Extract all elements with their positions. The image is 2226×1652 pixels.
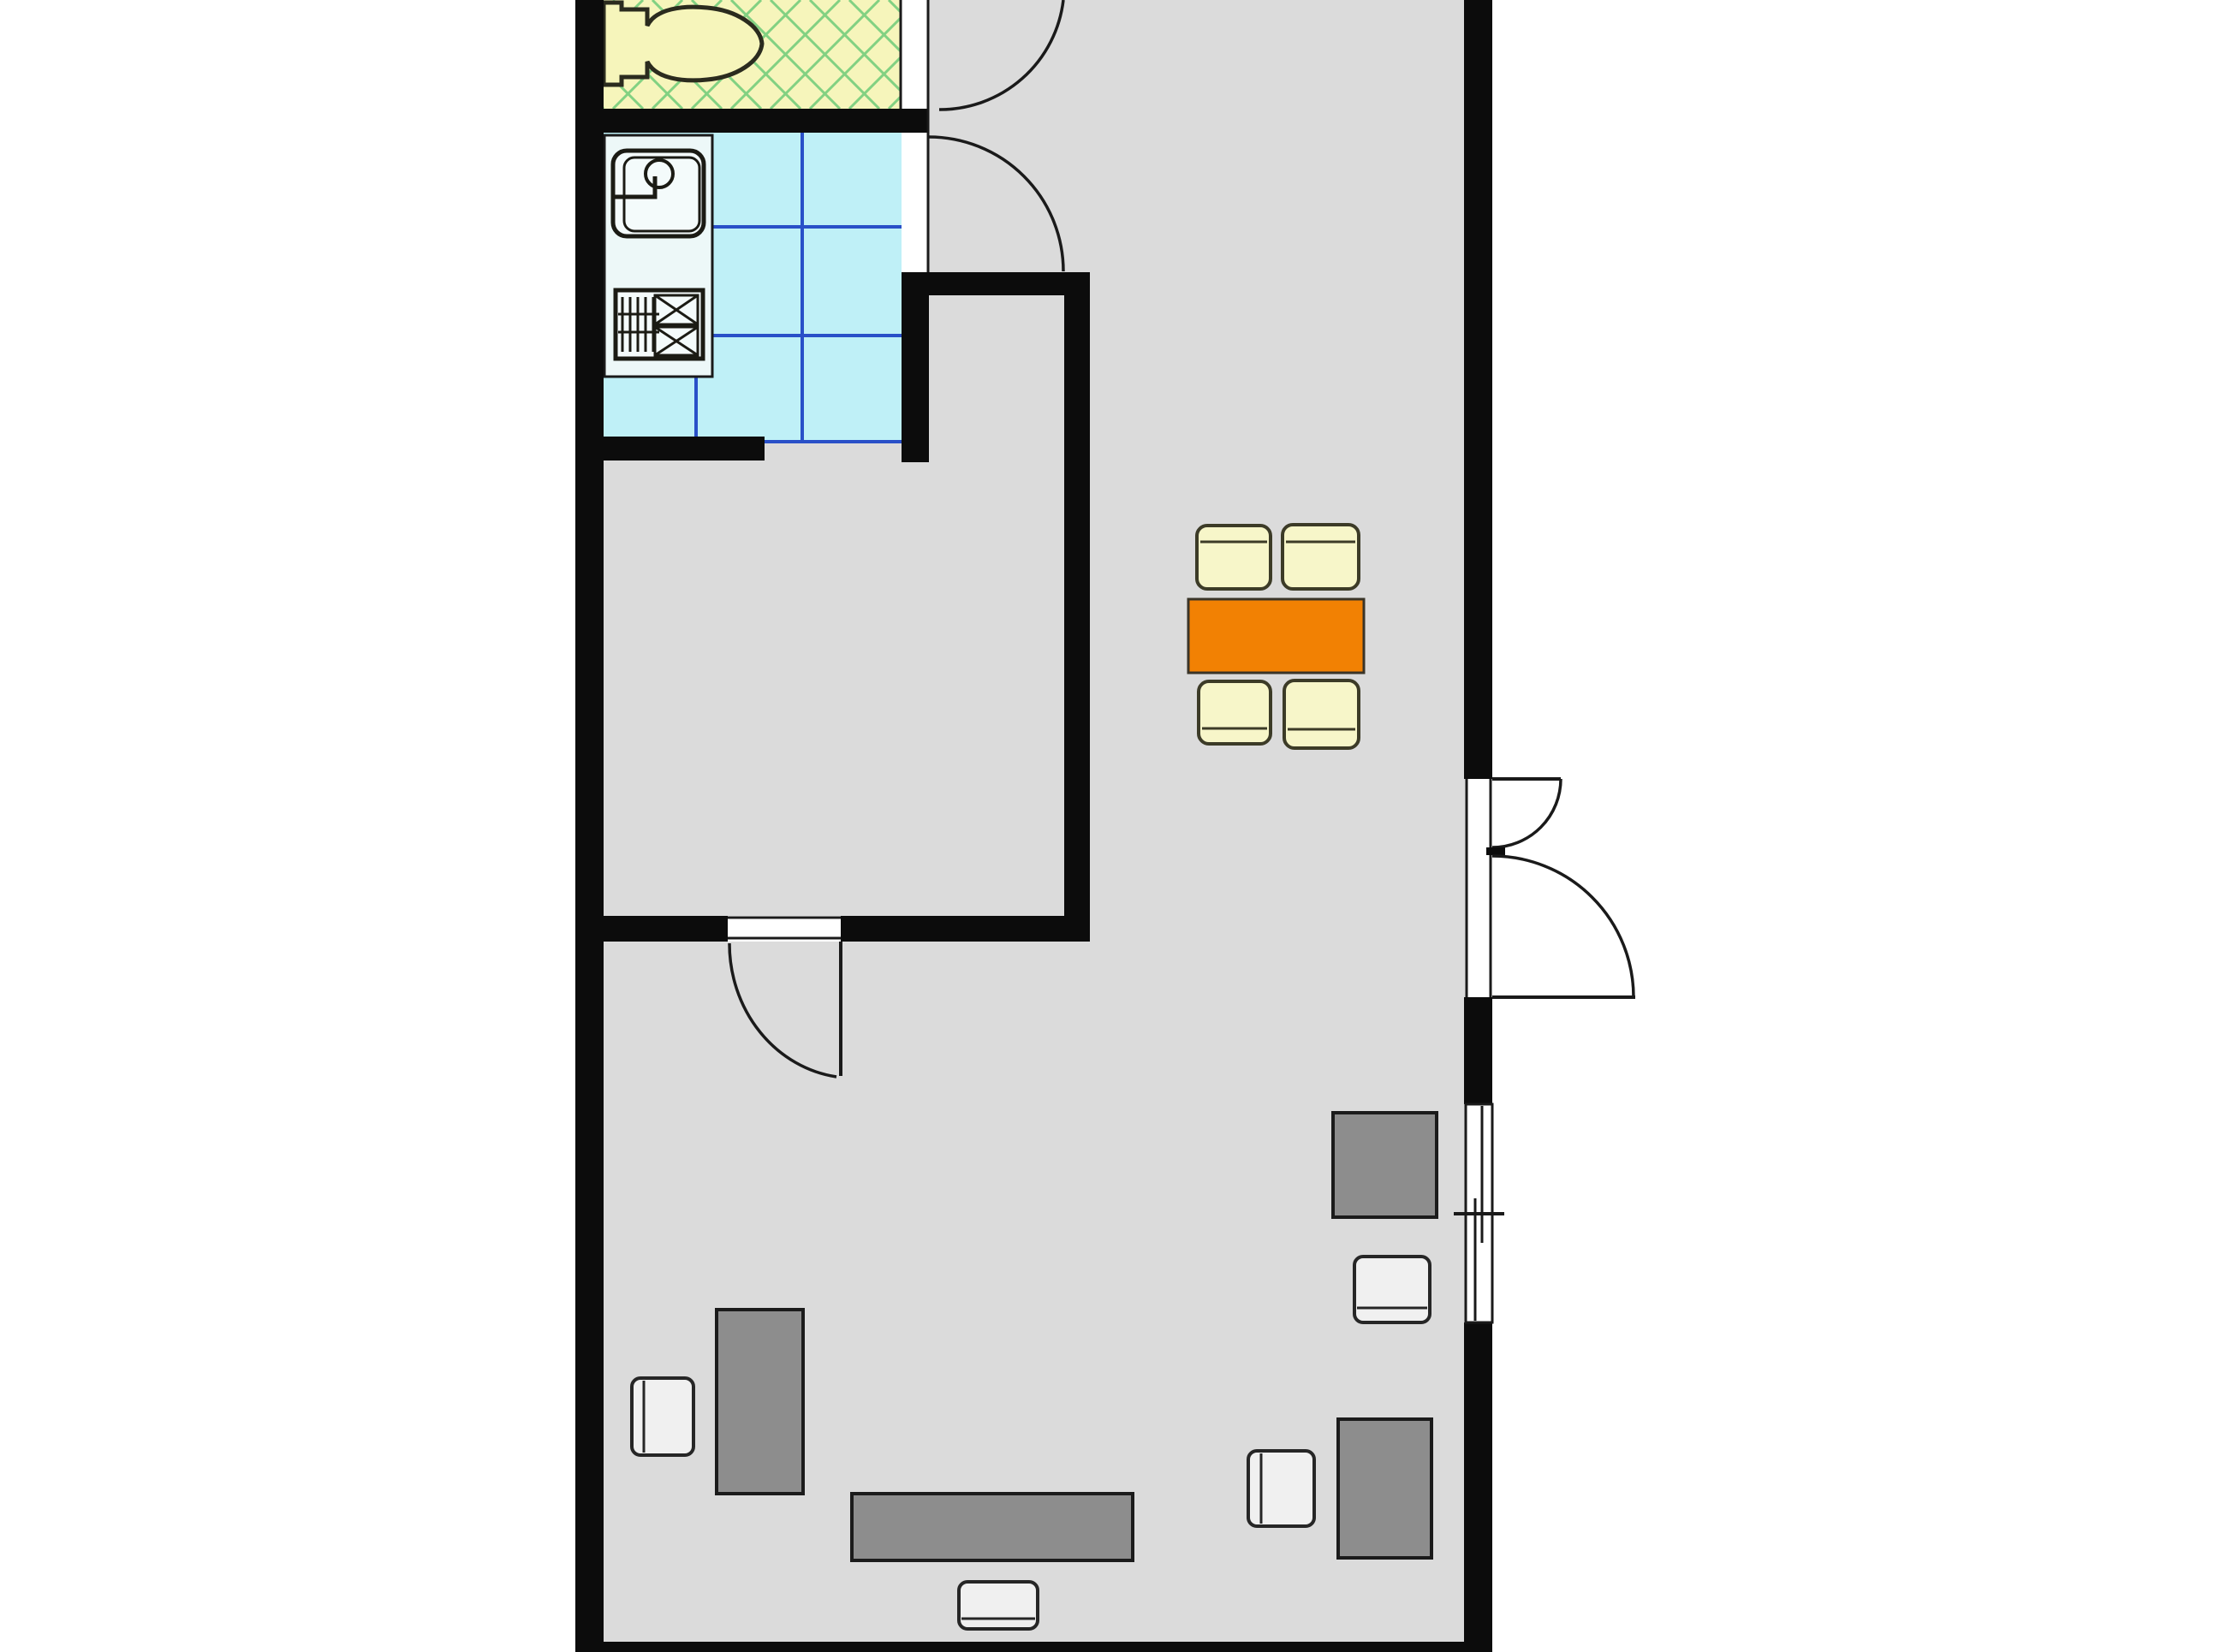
- entry-door-swing-small-arc: [1492, 779, 1561, 847]
- desk-bottom-left: [717, 1310, 803, 1494]
- wall-left: [575, 0, 604, 1652]
- entry-door-swing-large-arc: [1492, 856, 1634, 997]
- bathroom-door-gap: [902, 0, 929, 109]
- wall-midroom-bottom-right: [841, 916, 1090, 942]
- dining-table: [1188, 599, 1364, 673]
- floor-plan-page: [0, 0, 2226, 1652]
- toilet: [604, 3, 762, 85]
- wall-right-mid: [1464, 997, 1492, 1104]
- wall-inner-right: [1064, 295, 1090, 942]
- kitchen-door-gap: [902, 133, 929, 272]
- dining-chair-bottom-right: [1284, 680, 1359, 748]
- side-table-window: [1333, 1113, 1437, 1217]
- floor-plan-svg: [0, 0, 2226, 1652]
- wall-bottom: [575, 1642, 1492, 1652]
- sideboard-chair: [959, 1582, 1038, 1629]
- desk-chair-bottom-left: [632, 1378, 693, 1455]
- entry-door-stop-tick: [1486, 847, 1505, 855]
- wall-right-lower: [1464, 1322, 1492, 1652]
- desk-chair-window: [1354, 1257, 1430, 1322]
- wall-midroom-bottom-left: [575, 916, 728, 942]
- wall-inner-top: [902, 272, 1090, 295]
- dining-chair-bottom-left: [1199, 681, 1271, 744]
- dining-chair-top-left: [1197, 526, 1271, 589]
- wall-right-upper: [1464, 0, 1492, 779]
- wall-kitchen-bottom: [575, 437, 765, 461]
- sink-basin-outer: [613, 151, 704, 236]
- desk-chair-bottom-right: [1248, 1451, 1314, 1526]
- sideboard: [852, 1494, 1133, 1560]
- entry-door-gap: [1466, 779, 1492, 997]
- desk-bottom-right: [1338, 1419, 1431, 1558]
- wall-kitchen-right: [902, 272, 929, 462]
- wall-bathroom-bottom: [575, 109, 929, 133]
- dining-chair-top-right: [1283, 525, 1359, 589]
